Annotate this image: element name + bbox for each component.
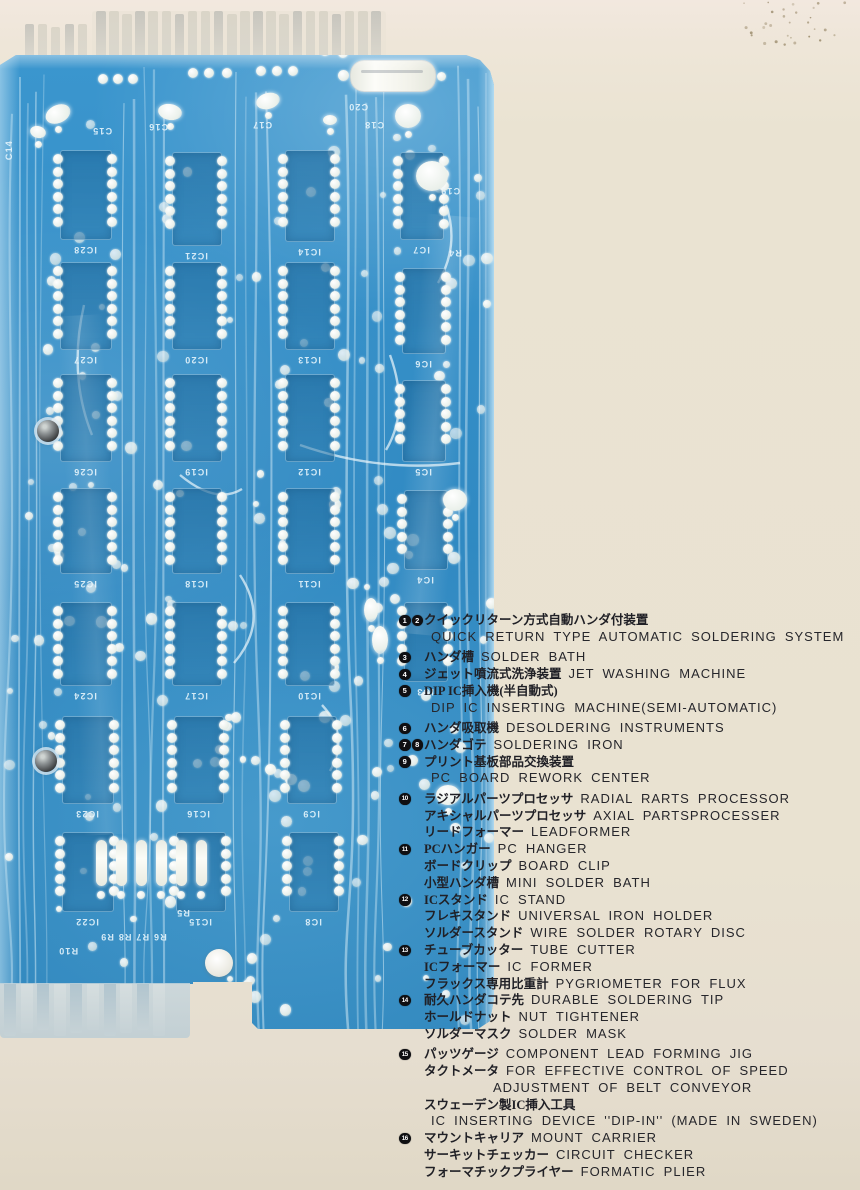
ic-pad: [107, 167, 117, 177]
ic-pad: [165, 542, 175, 552]
legend-en-text: IC STAND: [495, 892, 566, 907]
ic-pad: [53, 441, 63, 451]
ic-pad: [217, 219, 227, 229]
silkscreen-label: C18: [364, 120, 384, 130]
capacitor-blob: [416, 161, 448, 191]
connector-finger: [266, 11, 276, 58]
ic-pad: [278, 391, 288, 401]
connector-finger: [25, 24, 34, 58]
vertical-resistor: [196, 840, 207, 886]
legend-jp-text: 耐久ハンダコテ先: [424, 993, 524, 1007]
pcb-pad: [56, 906, 62, 912]
ic-pad: [53, 403, 63, 413]
ic-pad: [107, 542, 117, 552]
legend-item: 12 クイックリターン方式自動ハンダ付装置: [398, 612, 860, 629]
ic-pad: [278, 441, 288, 451]
legend-item: PC BOARD REWORK CENTER: [398, 770, 860, 787]
ic-pad: [330, 154, 340, 164]
ic-pad: [395, 310, 405, 320]
ic-chip: [285, 488, 335, 574]
ic-pad: [217, 517, 227, 527]
ic-chip: [402, 268, 446, 354]
ic-pad: [217, 619, 227, 629]
ic-chip: [289, 832, 339, 912]
pcb-pad: [125, 442, 137, 454]
connector-finger: [153, 984, 165, 1036]
ic-chip: [285, 150, 335, 242]
connector-finger: [188, 11, 198, 58]
legend-item: フレキスタンドUNIVERSAL IRON HOLDER: [398, 908, 860, 925]
ic-pad: [221, 849, 231, 859]
legend-jp-text: フレキスタンド: [424, 909, 511, 923]
connector-finger: [148, 11, 158, 58]
ic-pad: [397, 532, 407, 542]
ic-pad: [330, 179, 340, 189]
connector-finger: [70, 984, 82, 1033]
pcb-pad: [4, 760, 14, 770]
ic-pad: [217, 416, 227, 426]
ic-pad: [165, 304, 175, 314]
ic-pad: [217, 656, 227, 666]
ic-pad: [393, 219, 403, 229]
ic-pad: [278, 179, 288, 189]
ic-pad: [53, 391, 63, 401]
pcb-pad: [231, 712, 242, 723]
ic-pad: [219, 783, 229, 793]
pcb-pad: [146, 613, 158, 625]
legend-item: 6 ハンダ吸取機DESOLDERING INSTRUMENTS: [398, 720, 860, 737]
ic-pad: [165, 279, 175, 289]
ic-pad: [167, 733, 177, 743]
legend-en-text: PYGRIOMETER FOR FLUX: [556, 976, 747, 991]
ic-pad: [55, 886, 65, 896]
ic-pad: [280, 758, 290, 768]
ic-pad: [280, 745, 290, 755]
ic-pad: [107, 492, 117, 502]
ic-pad: [165, 517, 175, 527]
ic-pad: [53, 192, 63, 202]
ic-chip: [404, 490, 448, 570]
legend-item: 4 ジェット噴流式洗浄装置JET WASHING MACHINE: [398, 666, 860, 683]
pcb-pad: [128, 74, 138, 84]
pcb-pad: [165, 896, 177, 908]
ic-pad: [217, 194, 227, 204]
ic-pad: [330, 656, 340, 666]
ic-pad: [282, 874, 292, 884]
legend-en-text: FOR EFFECTIVE CONTROL OF SPEED: [506, 1063, 789, 1078]
ic-pad: [330, 492, 340, 502]
pcb-pad: [254, 513, 264, 523]
legend-en-text: RADIAL RARTS PROCESSOR: [580, 791, 790, 806]
ic-pad: [107, 428, 117, 438]
ic-pad: [330, 416, 340, 426]
pcb-pad: [483, 300, 491, 308]
ic-pad: [330, 517, 340, 527]
pcb-pad: [486, 598, 497, 609]
pcb-pad: [247, 953, 258, 964]
ic-pad: [217, 505, 227, 515]
ic-pad: [278, 217, 288, 227]
legend-jp-text: DIP IC挿入機(半自動式): [424, 684, 558, 698]
legend-number-badge: 9: [399, 756, 411, 768]
ic-pad: [219, 720, 229, 730]
ic-pad: [217, 291, 227, 301]
pcb-pad: [387, 563, 398, 574]
pcb-bottom-edge-connector: [0, 983, 200, 1039]
ic-pad: [330, 391, 340, 401]
silkscreen-label: C16: [148, 122, 168, 132]
connector-finger: [201, 11, 211, 58]
legend-number-badge: 2: [412, 615, 424, 627]
legend-number-badge: 5: [399, 685, 411, 697]
ic-pad: [221, 886, 231, 896]
ic-pad: [53, 492, 63, 502]
ic-pad: [332, 758, 342, 768]
ic-label: IC23: [63, 809, 111, 819]
ic-pad: [278, 167, 288, 177]
legend-jp-text: タクトメータ: [424, 1064, 499, 1078]
legend-en-text: ADJUSTMENT OF BELT CONVEYOR: [493, 1080, 752, 1095]
ic-pad: [217, 644, 227, 654]
pcb-pad: [34, 635, 45, 646]
ic-label: IC11: [285, 579, 333, 589]
ic-pad: [165, 169, 175, 179]
ic-chip: [62, 716, 114, 804]
ic-chip: [60, 374, 112, 462]
ic-pad: [395, 272, 405, 282]
legend-item: 13 チューブカッターTUBE CUTTER: [398, 942, 860, 959]
ic-pad: [217, 181, 227, 191]
ic-pad: [397, 507, 407, 517]
ic-pad: [167, 783, 177, 793]
ic-pad: [165, 291, 175, 301]
pcb-pad: [236, 274, 243, 281]
ic-pad: [330, 378, 340, 388]
ic-pad: [109, 770, 119, 780]
ic-pad: [334, 849, 344, 859]
pcb-pad: [273, 915, 280, 922]
ic-pad: [107, 656, 117, 666]
ic-pad: [55, 733, 65, 743]
legend-item: ホールドナットNUT TIGHTENER: [398, 1009, 860, 1026]
pcb-pad: [251, 756, 260, 765]
legend-en-text: WIRE SOLDER ROTARY DISC: [530, 925, 746, 940]
legend-item: 9 プリント基板部品交換装置: [398, 754, 860, 771]
ic-pad: [165, 156, 175, 166]
legend-en-text: LEADFORMER: [531, 824, 631, 839]
pcb-pad: [156, 800, 167, 811]
ic-pad: [217, 329, 227, 339]
connector-finger: [104, 984, 116, 1036]
legend-item: ソルダーマスクSOLDER MASK: [398, 1026, 860, 1043]
ic-pad: [109, 720, 119, 730]
ic-pad: [219, 770, 229, 780]
ic-chip: [172, 602, 222, 686]
ic-pad: [217, 169, 227, 179]
ic-chip: [285, 374, 335, 462]
ic-pad: [439, 219, 449, 229]
ic-pad: [441, 272, 451, 282]
ic-label: IC20: [172, 355, 220, 365]
ic-pad: [395, 322, 405, 332]
pcb-pad: [153, 480, 163, 490]
ic-pad: [217, 206, 227, 216]
ic-pad: [53, 505, 63, 515]
ic-pad: [395, 384, 405, 394]
silkscreen-label: C17: [252, 120, 272, 130]
lead-pad: [117, 891, 125, 899]
legend-number-badges: 3: [399, 652, 411, 664]
ic-pad: [107, 530, 117, 540]
ic-pad: [278, 505, 288, 515]
ic-pad: [278, 530, 288, 540]
ic-pad: [441, 397, 451, 407]
ic-pad: [278, 542, 288, 552]
connector-finger: [78, 24, 87, 58]
legend-item: 10 ラジアルパーツプロセッサRADIAL RARTS PROCESSOR: [398, 791, 860, 808]
legend-number-badges: 78: [399, 739, 423, 751]
ic-pad: [167, 770, 177, 780]
ic-label: IC4: [401, 575, 449, 585]
ic-pad: [334, 836, 344, 846]
ic-pad: [217, 156, 227, 166]
ic-pad: [330, 403, 340, 413]
ic-label: IC6: [399, 359, 447, 369]
connector-finger: [371, 11, 381, 58]
pcb-pad: [374, 476, 383, 485]
ic-pad: [282, 836, 292, 846]
ic-pad: [330, 505, 340, 515]
connector-finger: [38, 24, 47, 58]
legend-number-badge: 3: [399, 652, 411, 664]
connector-finger: [87, 984, 99, 1030]
lead-pad: [429, 194, 436, 201]
connector-finger: [162, 11, 172, 58]
resistor-component: [350, 60, 436, 92]
ic-pad: [107, 217, 117, 227]
ic-pad: [217, 606, 227, 616]
pcb-pad: [43, 344, 54, 355]
scanned-catalog-page: IC28IC27IC26IC25IC24IC23IC22IC21IC20IC19…: [0, 0, 860, 1190]
ic-pad: [217, 492, 227, 502]
pcb-pad: [372, 767, 382, 777]
legend-en-text: CIRCUIT CHECKER: [556, 1147, 694, 1162]
ic-pad: [282, 886, 292, 896]
ic-pad: [165, 669, 175, 679]
ic-pad: [217, 542, 227, 552]
ic-pad: [165, 416, 175, 426]
capacitor-blob: [443, 489, 467, 511]
legend-item: スウェーデン製IC挿入工具: [398, 1097, 860, 1114]
pcb-pad: [481, 253, 493, 265]
legend-jp-text: フォーマチックプライヤー: [424, 1165, 574, 1179]
connector-finger: [227, 14, 237, 61]
vertical-resistor: [176, 840, 187, 886]
ic-pad: [282, 861, 292, 871]
legend-item: フラックス専用比重計PYGRIOMETER FOR FLUX: [398, 976, 860, 993]
pcb-pad: [199, 994, 210, 1005]
silkscreen-label: R10: [58, 946, 78, 956]
lead-pad: [167, 123, 174, 130]
ic-pad: [330, 217, 340, 227]
ic-pad: [278, 644, 288, 654]
legend-number-badges: 11: [399, 844, 411, 856]
legend-en-text: PC HANGER: [498, 841, 588, 856]
pcb-pad: [477, 405, 485, 413]
ic-pad: [53, 179, 63, 189]
ic-pad: [219, 745, 229, 755]
ic-pad: [167, 720, 177, 730]
ic-pad: [330, 644, 340, 654]
legend-en-text: TUBE CUTTER: [530, 942, 636, 957]
ic-pad: [107, 391, 117, 401]
ic-pad: [53, 606, 63, 616]
pcb-pad: [340, 715, 351, 726]
connector-finger: [122, 14, 132, 61]
ic-pad: [165, 656, 175, 666]
ic-chip: [60, 262, 112, 350]
pcb-pad: [249, 991, 261, 1003]
legend-number-badges: 14: [399, 995, 411, 1007]
ic-label: IC9: [287, 809, 335, 819]
legend-en-text: IC FORMER: [507, 959, 592, 974]
ic-pad: [55, 770, 65, 780]
legend-en-text: JET WASHING MACHINE: [569, 666, 747, 681]
legend-number-badges: 16: [399, 1133, 411, 1145]
ic-label: IC18: [172, 579, 220, 589]
pcb-pad: [165, 596, 172, 603]
ic-pad: [441, 335, 451, 345]
legend-jp-text: ハンダ槽: [424, 650, 474, 664]
ic-chip: [285, 262, 335, 350]
legend-number-badges: 4: [399, 669, 411, 681]
ic-pad: [330, 266, 340, 276]
lead-pad: [338, 70, 349, 81]
capacitor-blob: [323, 115, 337, 125]
ic-pad: [53, 291, 63, 301]
ic-pad: [330, 606, 340, 616]
pcb-pad: [393, 134, 400, 141]
ic-label: IC15: [176, 917, 224, 927]
ic-pad: [330, 329, 340, 339]
ic-pad: [165, 644, 175, 654]
ic-pad: [334, 861, 344, 871]
ic-pad: [53, 542, 63, 552]
pcb-pad: [88, 942, 96, 950]
ic-pad: [393, 156, 403, 166]
connector-finger: [279, 14, 289, 61]
ic-pad: [330, 192, 340, 202]
connector-finger: [54, 984, 66, 1036]
ic-pad: [280, 733, 290, 743]
lead-pad: [177, 891, 185, 899]
ic-pad: [165, 441, 175, 451]
silkscreen-label: C15: [92, 126, 112, 136]
ic-pad: [55, 849, 65, 859]
ic-label: IC10: [285, 691, 333, 701]
ic-pad: [53, 517, 63, 527]
ic-pad: [53, 555, 63, 565]
connector-finger: [4, 984, 16, 1036]
ic-pad: [53, 316, 63, 326]
ic-pad: [165, 505, 175, 515]
connector-finger: [65, 24, 74, 58]
ic-pad: [55, 836, 65, 846]
legend-number-badge: 15: [399, 1049, 411, 1061]
ic-pad: [441, 422, 451, 432]
ic-pad: [397, 494, 407, 504]
ic-pad: [107, 669, 117, 679]
legend-item: 5 DIP IC挿入機(半自動式): [398, 683, 860, 700]
legend-number-badge: 10: [399, 793, 411, 805]
ic-pad: [55, 861, 65, 871]
pcb-pad: [256, 66, 266, 76]
ic-chip: [174, 716, 224, 804]
ic-label: IC24: [61, 691, 109, 701]
connector-finger: [319, 11, 329, 58]
legend-item: ボードクリップBOARD CLIP: [398, 858, 860, 875]
ic-pad: [53, 669, 63, 679]
ic-pad: [107, 154, 117, 164]
legend-en-text: SOLDER BATH: [481, 649, 586, 664]
ic-pad: [107, 204, 117, 214]
ic-pad: [280, 720, 290, 730]
legend-jp-text: 小型ハンダ槽: [424, 876, 499, 890]
silkscreen-label: C19: [440, 186, 460, 196]
mounting-hole: [37, 420, 59, 442]
connector-finger: [358, 11, 368, 58]
connector-finger: [21, 984, 33, 1033]
legend-jp-text: クイックリターン方式自動ハンダ付装置: [424, 613, 648, 627]
ic-pad: [278, 517, 288, 527]
ic-pad: [278, 291, 288, 301]
legend-jp-text: サーキットチェッカー: [424, 1148, 549, 1162]
lead-pad: [452, 514, 459, 521]
ic-pad: [221, 874, 231, 884]
ic-pad: [109, 745, 119, 755]
ic-chip: [285, 602, 335, 686]
ic-pad: [441, 310, 451, 320]
lead-pad: [197, 891, 205, 899]
ic-pad: [330, 555, 340, 565]
legend-item: 78 ハンダゴテSOLDERING IRON: [398, 737, 860, 754]
legend-number-badge: 8: [412, 739, 424, 751]
ic-pad: [278, 403, 288, 413]
ic-pad: [330, 304, 340, 314]
connector-finger: [96, 11, 106, 58]
legend-jp-text: パッツゲージ: [424, 1047, 499, 1061]
ic-label: IC8: [289, 917, 337, 927]
silkscreen-label: C20: [348, 102, 368, 112]
legend-jp-text: アキシャルパーツプロセッサ: [424, 809, 586, 823]
pcb-pad: [222, 68, 232, 78]
vertical-resistor: [96, 840, 107, 886]
connector-finger: [240, 11, 250, 58]
legend-item: サーキットチェッカーCIRCUIT CHECKER: [398, 1147, 860, 1164]
legend-number-badges: 12: [399, 615, 423, 627]
ic-pad: [217, 378, 227, 388]
ic-label: IC27: [61, 355, 109, 365]
ic-pad: [278, 204, 288, 214]
pcb-pad: [157, 695, 168, 706]
ic-pad: [107, 329, 117, 339]
ic-label: IC25: [61, 579, 109, 589]
legend-number-badges: 10: [399, 793, 411, 805]
ic-pad: [53, 619, 63, 629]
ic-pad: [107, 555, 117, 565]
ic-label: IC22: [63, 917, 111, 927]
ic-pad: [397, 544, 407, 554]
